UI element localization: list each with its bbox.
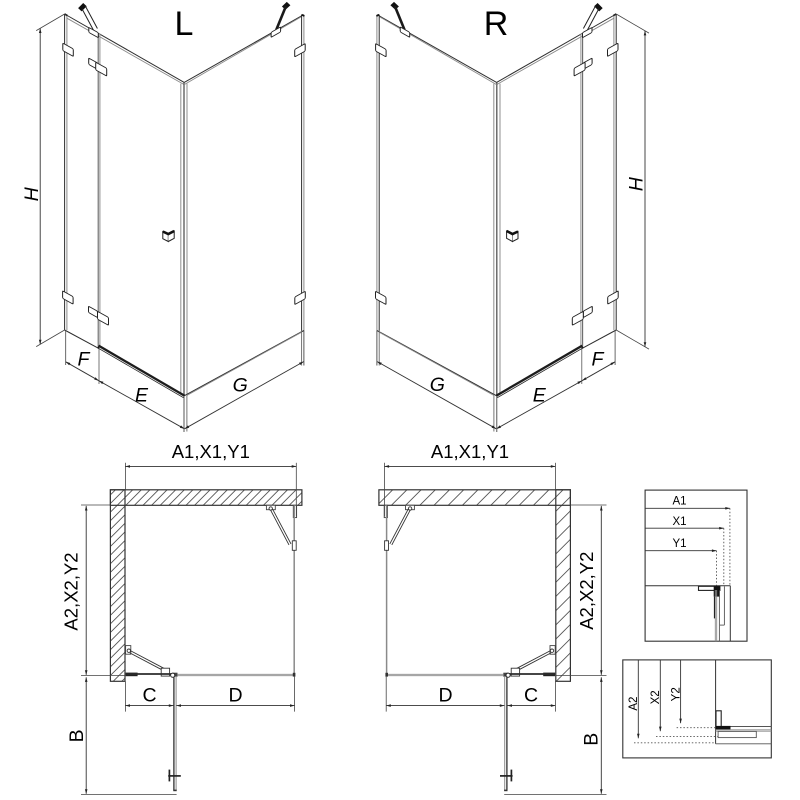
svg-text:F: F [77, 349, 90, 371]
svg-text:R: R [484, 5, 509, 43]
svg-text:A1: A1 [672, 496, 686, 508]
svg-text:A2,X2,Y2: A2,X2,Y2 [61, 552, 82, 630]
svg-text:H: H [21, 186, 43, 201]
svg-text:E: E [135, 385, 149, 407]
svg-text:E: E [533, 385, 547, 407]
svg-text:B: B [66, 729, 88, 742]
svg-text:B: B [581, 733, 603, 746]
svg-text:Y2: Y2 [671, 687, 683, 701]
svg-text:G: G [430, 374, 445, 396]
svg-text:C: C [142, 684, 156, 706]
svg-text:F: F [591, 349, 604, 371]
svg-text:D: D [438, 684, 452, 706]
svg-text:H: H [625, 176, 647, 191]
svg-text:A1,X1,Y1: A1,X1,Y1 [172, 441, 250, 462]
svg-text:A2: A2 [628, 697, 640, 711]
svg-text:A2,X2,Y2: A2,X2,Y2 [576, 552, 597, 630]
svg-text:L: L [175, 5, 194, 43]
svg-text:X2: X2 [650, 690, 662, 704]
svg-text:G: G [233, 375, 248, 397]
svg-text:X1: X1 [672, 516, 686, 528]
svg-text:A1,X1,Y1: A1,X1,Y1 [431, 441, 509, 462]
svg-text:C: C [524, 684, 538, 706]
svg-text:Y1: Y1 [672, 538, 686, 550]
svg-text:D: D [228, 684, 242, 706]
